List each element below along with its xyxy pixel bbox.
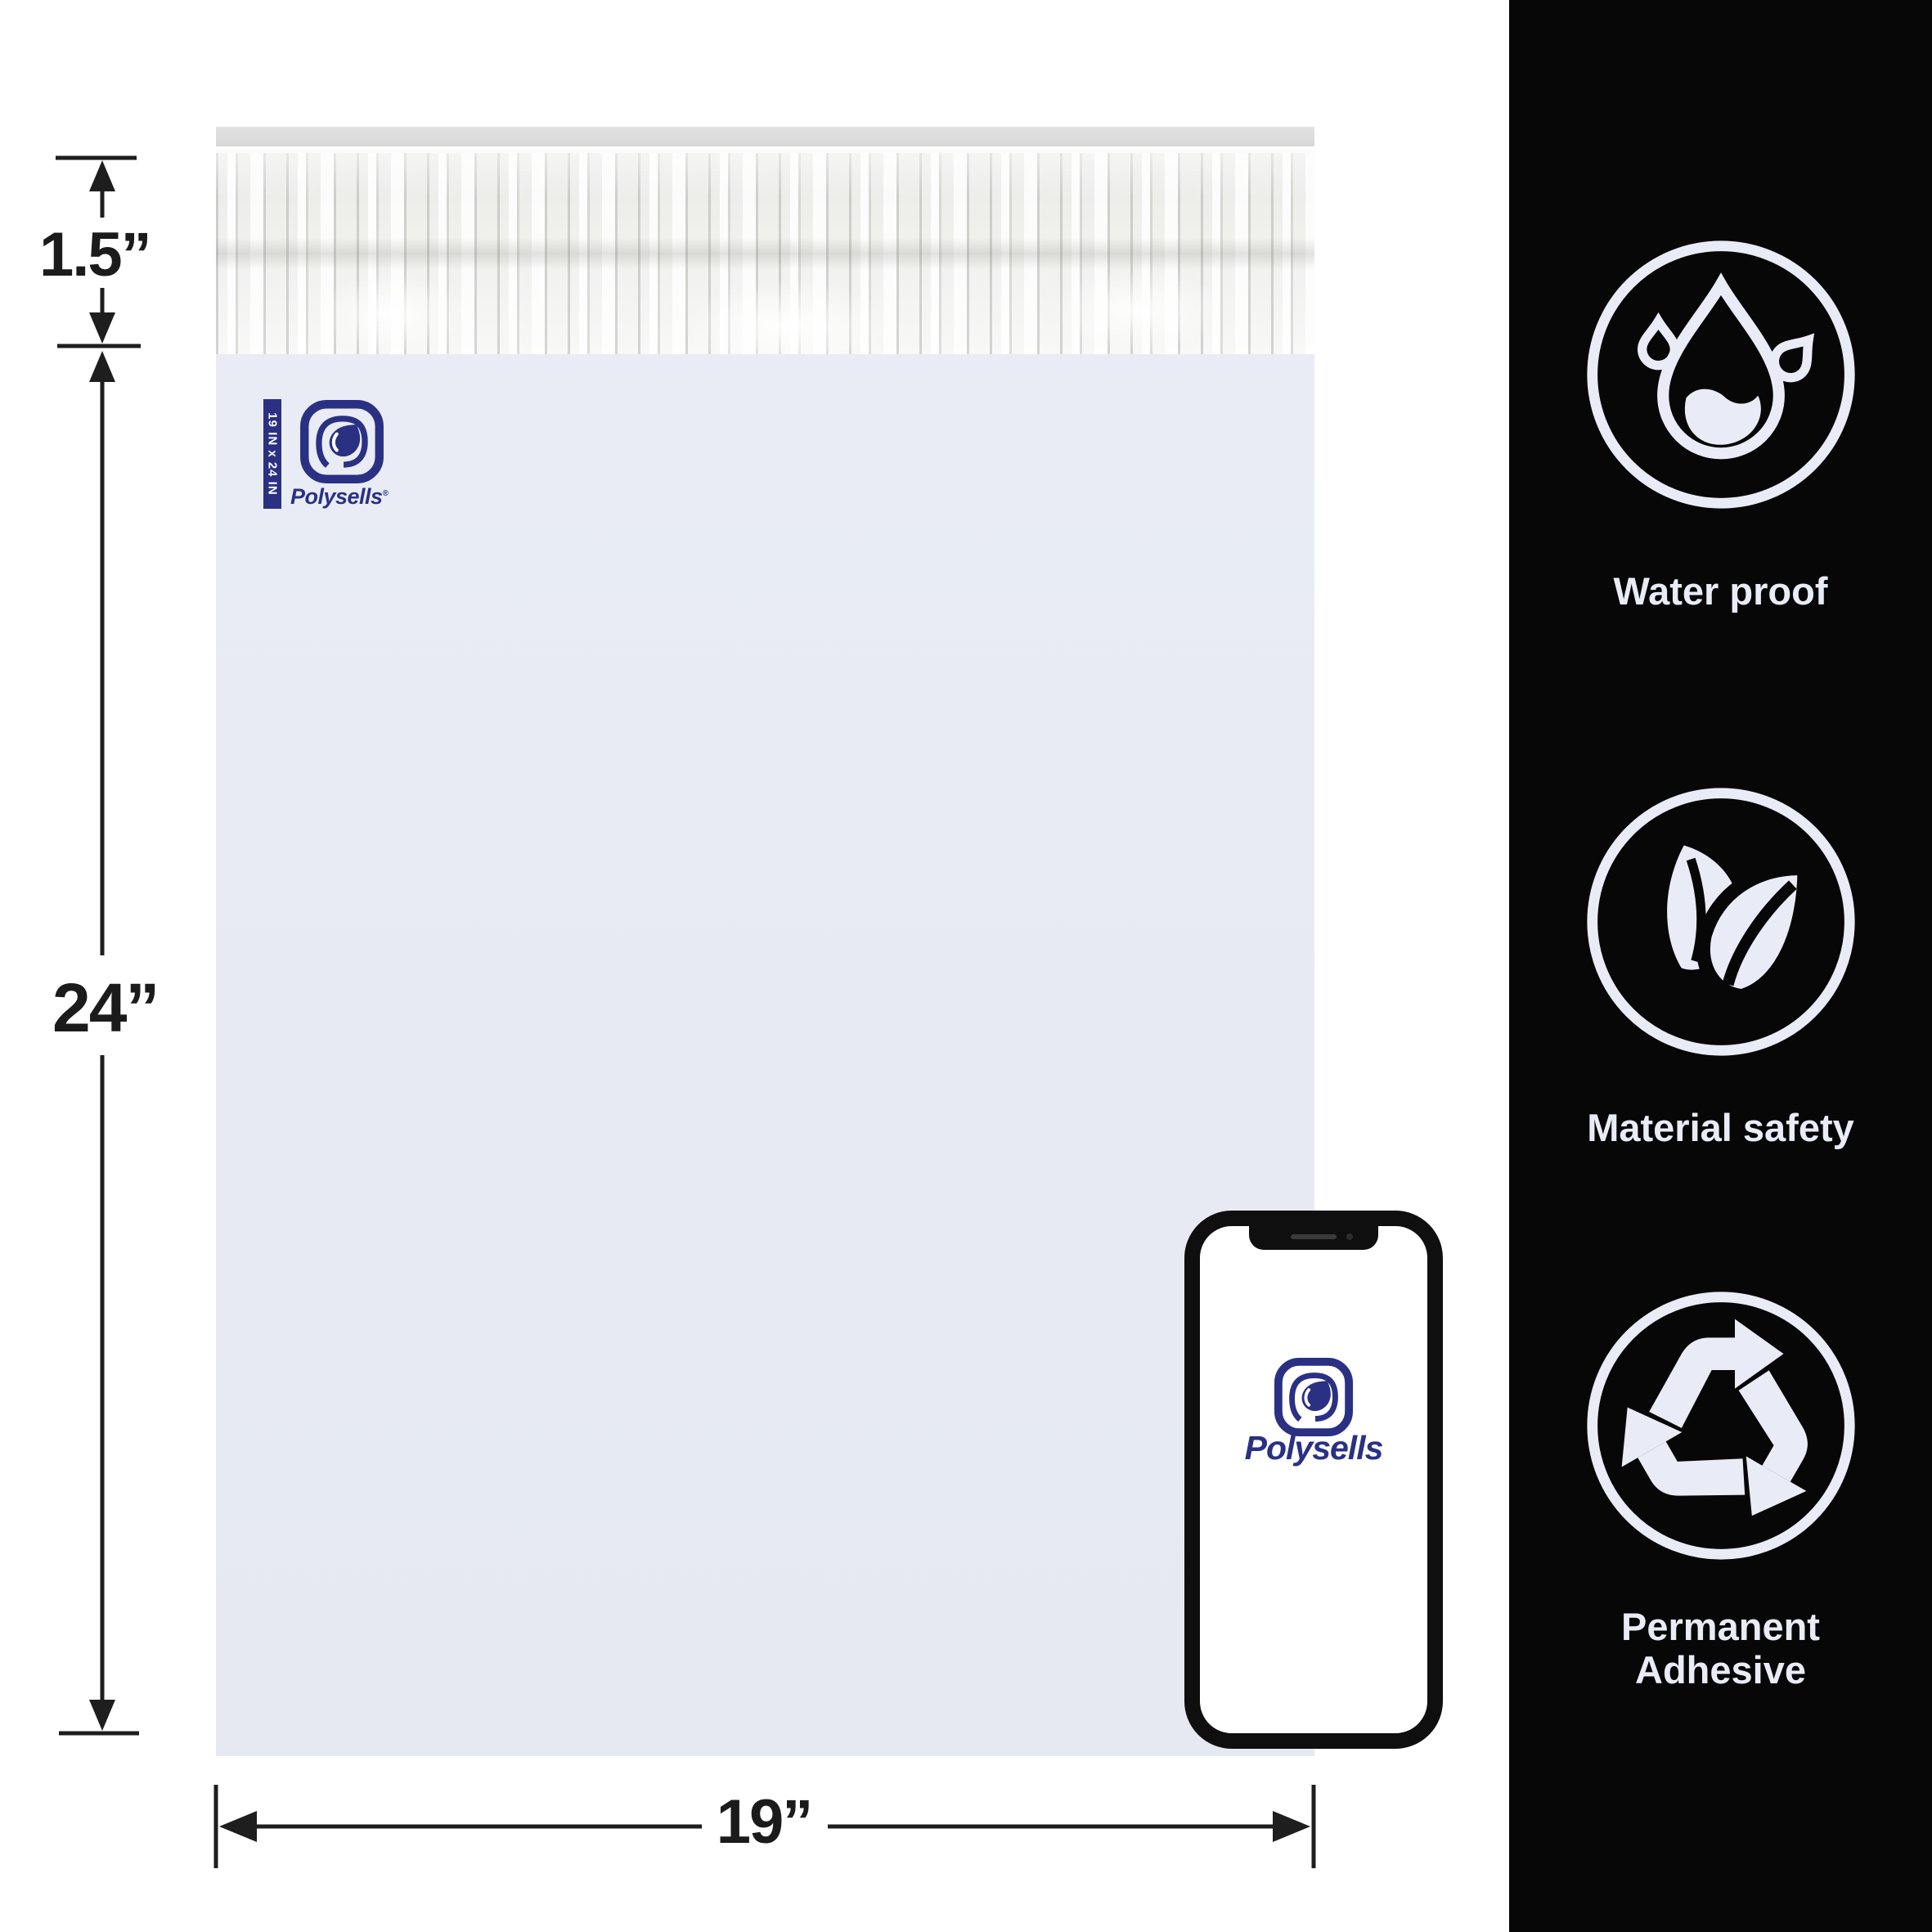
polysells-logo-icon (1274, 1357, 1354, 1437)
phone-speaker (1291, 1234, 1337, 1239)
phone-mockup: Polysells (1184, 1211, 1443, 1749)
bag-height-label: 24” (52, 968, 158, 1048)
mailer-bag-body (216, 354, 1314, 1756)
flap-height-label: 1.5” (39, 219, 151, 290)
mailer-top-seal-strip (216, 127, 1314, 146)
feature-label-material-safety: Material safety (1557, 1106, 1885, 1149)
feature-label-permanent-adhesive: Permanent Adhesive (1557, 1605, 1885, 1692)
phone-camera-dot (1346, 1233, 1353, 1240)
brand-name: Polysells (290, 484, 383, 509)
recycle-icon (1582, 1287, 1860, 1565)
size-tag-bar: 19 IN x 24 IN (263, 399, 281, 509)
feature-panel: Water proof Material safety Permanent Ad… (1509, 0, 1932, 1932)
phone-notch (1249, 1226, 1378, 1250)
brand-wordmark: Polysells® (290, 484, 405, 510)
mailer-adhesive-flap (216, 150, 1314, 354)
water-drop-icon (1582, 236, 1860, 514)
registered-mark: ® (383, 489, 389, 498)
product-infographic: 19 IN x 24 IN Polysells® (0, 0, 1932, 1932)
polysells-logo-icon (299, 399, 384, 484)
size-tag-label: 19 IN x 24 IN (266, 412, 280, 495)
bag-width-label: 19” (717, 1786, 812, 1858)
phone-brand-wordmark: Polysells (1200, 1429, 1427, 1467)
leaves-icon (1582, 783, 1860, 1061)
feature-label-water-proof: Water proof (1557, 569, 1885, 613)
